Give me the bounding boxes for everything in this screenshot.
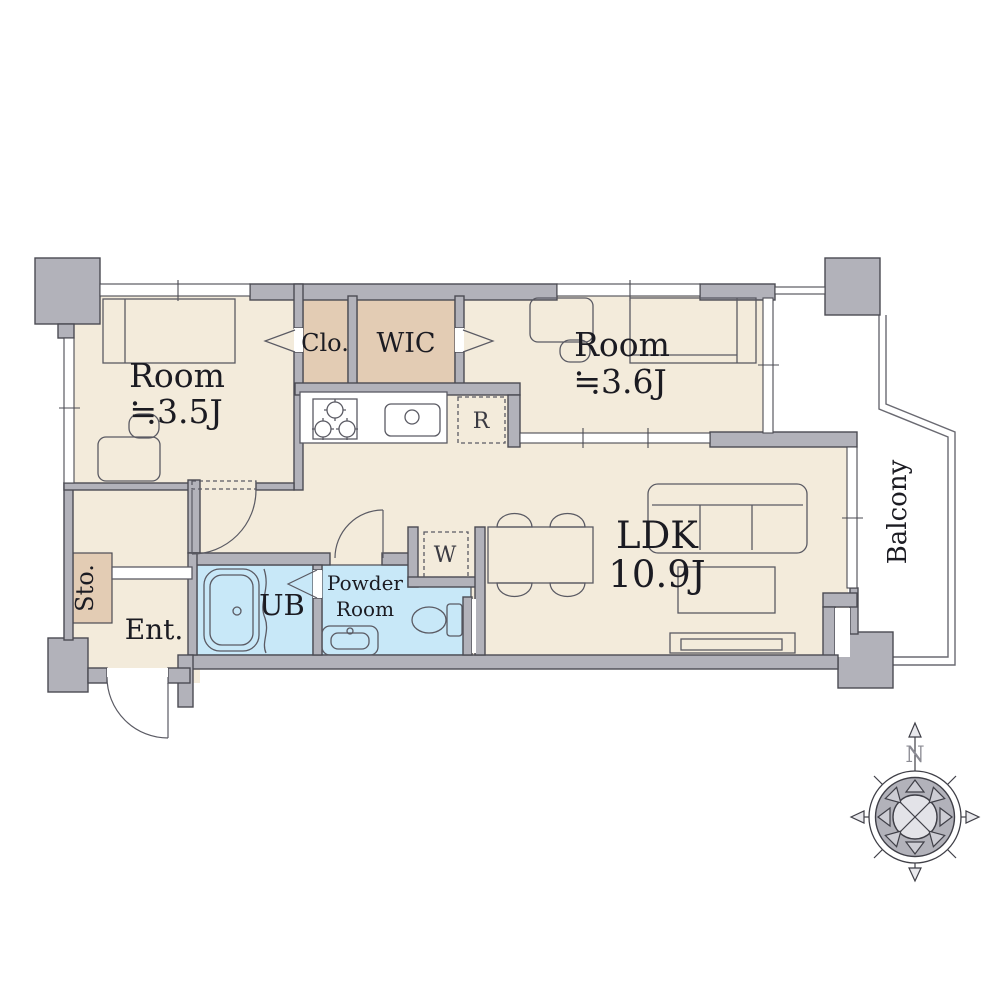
refrigerator-label: R xyxy=(473,409,491,434)
ldk-label: LDK xyxy=(616,514,699,557)
washer-label: W xyxy=(434,543,457,568)
room-b-label: Room xyxy=(574,325,670,364)
sliding-door-room-b-ldk xyxy=(520,433,710,443)
floor-plan-drawing: Room ≒3.5J Room ≒3.6J LDK 10.9J Clo. WIC… xyxy=(0,0,1000,1000)
wall-bottom-main xyxy=(190,655,838,669)
wall-niche-bottom xyxy=(408,577,477,587)
compass-spoke-nw xyxy=(874,776,883,785)
ub-label: UB xyxy=(259,588,305,622)
wall-closet-wic-divider xyxy=(348,296,357,385)
wall-room-a-bottom-right xyxy=(256,483,294,490)
compass-arrow-south xyxy=(909,868,921,881)
wic-opening xyxy=(455,328,464,352)
compass-arrow-north xyxy=(909,723,921,737)
wall-powder-right xyxy=(463,597,472,655)
storage-label: Sto. xyxy=(71,564,99,612)
compass-north-label: N xyxy=(905,743,924,768)
wall-left-lower xyxy=(64,483,73,640)
entrance-shelf xyxy=(112,567,192,579)
window-room-a-left xyxy=(64,338,74,483)
wall-hall-divider xyxy=(188,480,200,553)
entrance-label: Ent. xyxy=(125,613,184,646)
wall-ldk-corner-h xyxy=(823,593,857,607)
wall-room-a-bottom-left xyxy=(64,483,192,490)
wall-wic-right-upper xyxy=(455,296,464,328)
room-a-size: ≒3.5J xyxy=(129,392,222,431)
floor-plan-page: Room ≒3.5J Room ≒3.6J LDK 10.9J Clo. WIC… xyxy=(0,0,1000,1000)
wall-ent-bottom-left xyxy=(88,668,107,683)
wall-stub-top-left xyxy=(58,324,74,338)
wall-ent-bottom-right xyxy=(168,668,190,683)
wall-niche-right xyxy=(475,527,485,655)
balcony-label: Balcony xyxy=(883,459,913,564)
room-b-size: ≒3.6J xyxy=(573,362,666,401)
wic-label: WIC xyxy=(376,328,435,359)
wall-wic-right-lower xyxy=(455,352,464,385)
compass-spoke-ne xyxy=(948,776,957,785)
entry-door-arc xyxy=(107,677,168,738)
compass-spoke-sw xyxy=(874,850,883,859)
ub-opening xyxy=(313,570,322,598)
wall-ub-powder-bottom xyxy=(313,598,322,655)
closet-label: Clo. xyxy=(301,329,349,357)
powder-room-label-1: Powder xyxy=(327,571,403,595)
ldk-size: 10.9J xyxy=(608,553,705,596)
wall-ub-powder-top xyxy=(313,565,322,570)
pillar-bottom-left xyxy=(48,638,88,692)
compass-spoke-se xyxy=(948,850,957,859)
window-room-a-top xyxy=(100,284,250,296)
entry-opening xyxy=(107,668,168,683)
powder-room-label-2: Room xyxy=(336,597,394,621)
compass-arrow-east xyxy=(966,811,979,823)
pillar-top-left xyxy=(35,258,100,324)
wall-notch xyxy=(835,608,850,657)
pillar-top-right xyxy=(825,258,880,315)
wall-kitchen-jog xyxy=(508,395,520,447)
window-room-b-top xyxy=(557,284,700,296)
compass-arrow-west xyxy=(851,811,864,823)
wall-room-b-ldk xyxy=(710,432,857,447)
wall-room-a-right-upper xyxy=(294,284,303,328)
powder-right-gap xyxy=(472,599,476,653)
wall-wet-top-left xyxy=(190,553,330,565)
compass: N xyxy=(851,723,979,881)
room-a-label: Room xyxy=(129,356,225,395)
window-connector xyxy=(775,287,825,294)
